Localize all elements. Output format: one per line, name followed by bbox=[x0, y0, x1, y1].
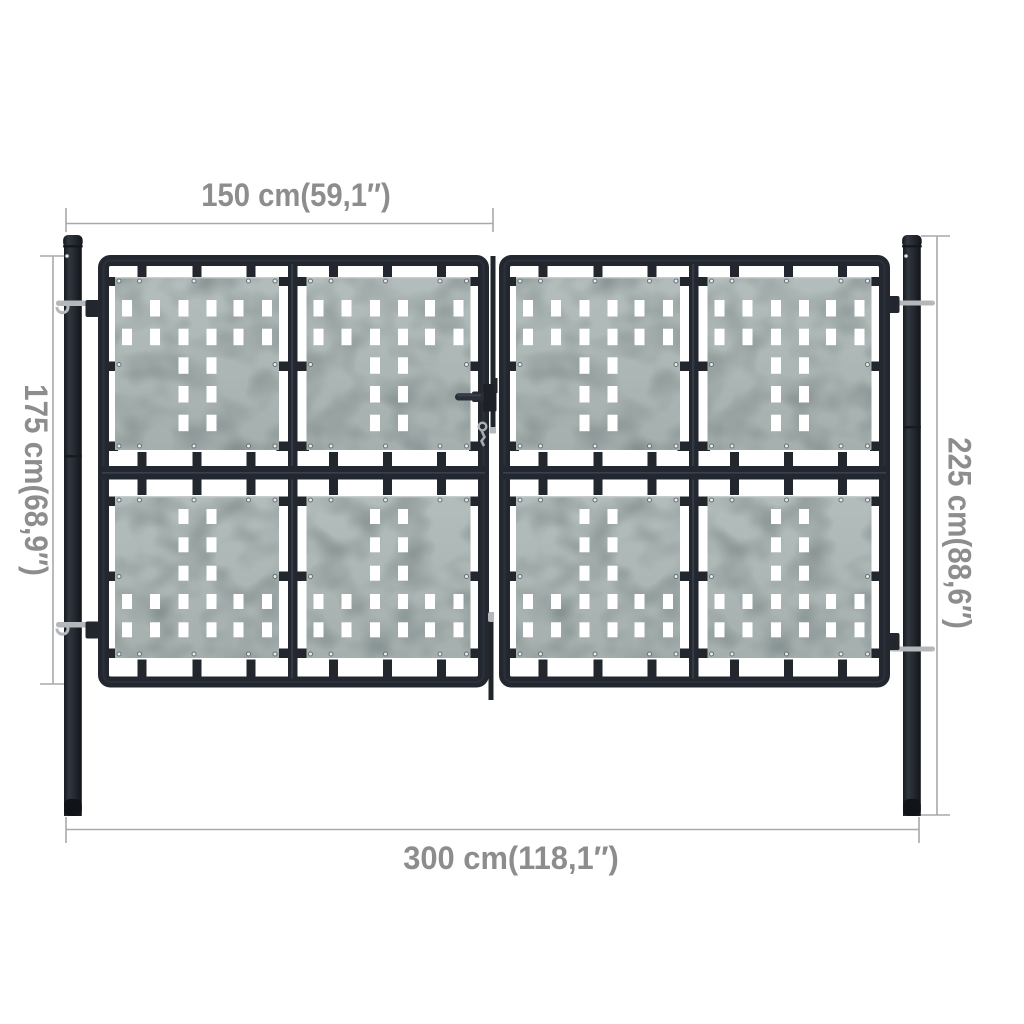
svg-text:175 cm(68,9″): 175 cm(68,9″) bbox=[18, 384, 55, 576]
svg-text:225 cm(88,6″): 225 cm(88,6″) bbox=[941, 437, 978, 629]
svg-text:300 cm(118,1″): 300 cm(118,1″) bbox=[403, 839, 619, 876]
svg-text:150 cm(59,1″): 150 cm(59,1″) bbox=[201, 177, 391, 214]
